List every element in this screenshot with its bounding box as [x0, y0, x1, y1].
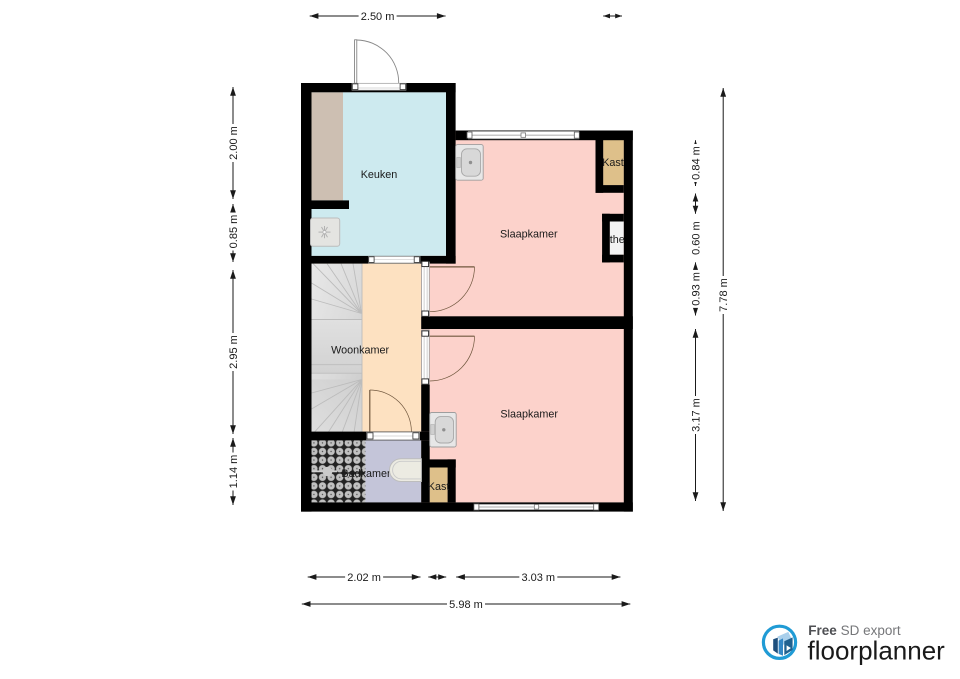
svg-text:Badkamer: Badkamer	[341, 468, 391, 480]
svg-text:0.84 m: 0.84 m	[690, 146, 702, 180]
svg-text:Keuken: Keuken	[361, 169, 398, 181]
svg-text:0.85 m: 0.85 m	[228, 215, 240, 249]
svg-text:7.78 m: 7.78 m	[718, 278, 730, 312]
svg-text:the: the	[610, 234, 625, 246]
svg-text:Kast: Kast	[428, 481, 450, 493]
svg-text:Slaapkamer: Slaapkamer	[500, 409, 558, 421]
svg-text:3.17 m: 3.17 m	[690, 398, 702, 432]
svg-text:Woonkamer: Woonkamer	[331, 344, 389, 356]
svg-text:Kast: Kast	[602, 157, 624, 169]
svg-text:Slaapkamer: Slaapkamer	[500, 228, 558, 240]
svg-text:2.50 m: 2.50 m	[361, 11, 395, 23]
svg-text:5.98 m: 5.98 m	[449, 599, 483, 611]
svg-text:0.60 m: 0.60 m	[690, 221, 702, 255]
svg-text:2.95 m: 2.95 m	[228, 335, 240, 369]
svg-text:1.14 m: 1.14 m	[228, 455, 240, 489]
svg-text:2.00 m: 2.00 m	[228, 126, 240, 160]
svg-text:2.02 m: 2.02 m	[347, 572, 381, 584]
svg-text:0.93 m: 0.93 m	[690, 272, 702, 306]
svg-text:3.03 m: 3.03 m	[521, 572, 555, 584]
svg-text:floorplanner: floorplanner	[808, 636, 946, 666]
